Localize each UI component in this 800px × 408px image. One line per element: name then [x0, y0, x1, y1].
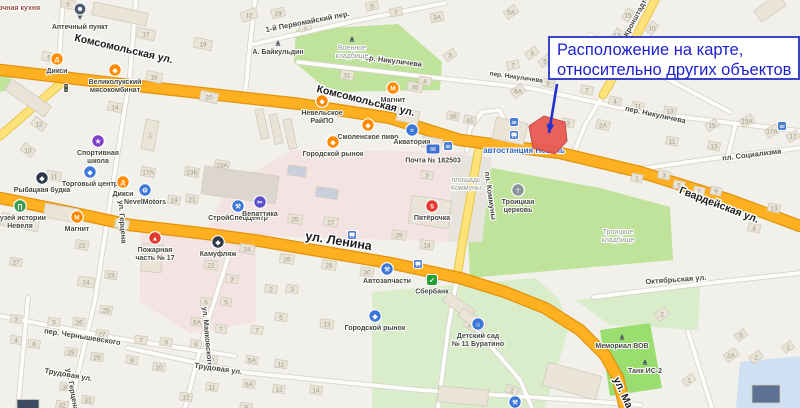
- building-number: 2: [660, 311, 664, 318]
- building-number: 4: [14, 337, 18, 344]
- poi-label: Мемориал ВОВ: [595, 343, 648, 350]
- poi-kamuflyazh[interactable]: ◆: [212, 236, 225, 249]
- poi-glyph: ≈: [410, 127, 414, 134]
- area-troitskoe-kladbishche-area: [466, 168, 673, 278]
- building: [17, 400, 39, 408]
- traffic-light-dot: [65, 89, 67, 91]
- building-number: 3: [14, 316, 18, 323]
- road-label: ул. Герцена: [117, 200, 129, 244]
- poi-glyph: М: [390, 85, 395, 92]
- building-number: 31: [84, 397, 92, 404]
- poi-label: Магнит: [381, 97, 406, 104]
- building: [269, 113, 283, 144]
- poi-diksi-1[interactable]: Д: [51, 53, 64, 66]
- poi-label: Коммуны: [451, 185, 481, 192]
- building-number: 4: [752, 225, 756, 232]
- road-minor-sw: [18, 298, 28, 408]
- building-number: 11: [51, 173, 58, 180]
- bus-stop-icon[interactable]: [348, 231, 357, 240]
- poi-label: Дикси: [47, 68, 68, 75]
- building-number: 4: [613, 98, 617, 105]
- building-number: 5: [52, 319, 56, 326]
- poi-label: Танк ИС-2: [628, 368, 662, 375]
- building-number: 29: [395, 232, 403, 239]
- building-number: 13: [35, 121, 43, 128]
- traffic-light-dot: [65, 85, 67, 87]
- road-vert-topleft: [58, 0, 63, 78]
- poi-label: № 11 Буратино: [452, 340, 504, 348]
- building-number: 8: [194, 341, 198, 348]
- poi-glyph: ◆: [372, 313, 379, 320]
- poi-label: Молочная кухня: [0, 5, 40, 12]
- poi-label: Невеля: [7, 223, 33, 230]
- poi-muzey-istorii[interactable]: ∏: [14, 200, 27, 213]
- poi-avtozapchasti[interactable]: ⚒: [381, 263, 394, 276]
- poi-magnit-1[interactable]: М: [387, 82, 400, 95]
- building-number: 5: [224, 299, 228, 306]
- building-number: 14: [111, 104, 119, 111]
- poi-pochta[interactable]: ✉: [426, 144, 440, 154]
- poi-glyph: ⚙: [142, 186, 148, 194]
- road-label: Трудовая ул.: [194, 361, 243, 377]
- building-number: 13: [323, 321, 331, 328]
- poi-sportshkola[interactable]: ★: [92, 135, 105, 148]
- building-rect: [542, 362, 601, 399]
- poi-label: Смоленское пиво: [337, 134, 398, 141]
- building-number: 13: [770, 205, 778, 212]
- poi-magnit-2[interactable]: М: [71, 211, 84, 224]
- poi-label: площадь: [451, 177, 481, 184]
- poi-label: кладбище: [602, 236, 635, 244]
- building-number: 3: [448, 52, 452, 59]
- building: [754, 0, 787, 22]
- poi-label: Городской рынок: [303, 150, 364, 158]
- building-number: 7: [255, 327, 259, 334]
- building-number: 7: [219, 326, 223, 333]
- monument-base-icon: [276, 45, 280, 46]
- building-number: 5А: [248, 357, 257, 364]
- building-number: 6А: [514, 88, 523, 95]
- poi-label: часть № 17: [135, 254, 174, 262]
- building-number: 2: [269, 286, 273, 293]
- poi-molochnaya-kuhnya[interactable]: Молочная кухня: [0, 5, 40, 12]
- building-number: 35: [411, 84, 419, 91]
- poi-label: Спортивная: [77, 150, 119, 157]
- monument-base-icon: [620, 339, 624, 340]
- building-number: 7: [585, 87, 589, 94]
- poi-glyph: Д: [55, 56, 60, 63]
- poi-label: Аптечный пункт: [52, 23, 109, 31]
- building-number: 28: [67, 349, 75, 356]
- poi-sberbank[interactable]: ✓: [427, 275, 438, 286]
- bus-stop-icon[interactable]: 30: [444, 142, 453, 151]
- building-number: 11: [669, 138, 676, 145]
- building-rect: [255, 108, 269, 139]
- building-number: 14: [312, 387, 320, 394]
- poi-glyph: ◆: [112, 67, 119, 74]
- poi-label: Музей истории: [0, 214, 46, 222]
- bus-icon-wheel: [515, 137, 516, 138]
- building-number: 20: [205, 94, 213, 101]
- building-number: 1: [687, 377, 691, 384]
- building-number: 22: [78, 242, 86, 249]
- building-number: 6: [32, 341, 36, 348]
- poi-nevelmotors[interactable]: ⚙: [139, 184, 152, 197]
- building-rect: [754, 0, 787, 22]
- bus-icon-body: [415, 262, 420, 266]
- poi-aptechny-punkt[interactable]: [74, 3, 86, 20]
- building-number: 24: [243, 246, 251, 253]
- poi-voennoe-kladbishche[interactable]: ▴: [349, 35, 354, 42]
- building-number: 11: [209, 384, 216, 391]
- building: [283, 118, 297, 149]
- poi-vepattika[interactable]: ✂: [254, 196, 267, 209]
- poi-label: кладбище: [336, 52, 369, 60]
- poi-label: Троицкая: [502, 199, 535, 206]
- building-number: 10: [155, 364, 163, 371]
- annotation-line1: Расположение на карте,: [557, 40, 791, 60]
- building-number: 31: [343, 72, 351, 79]
- building-number: 1: [786, 344, 790, 351]
- bus-icon-wheel: [350, 237, 351, 238]
- poi-label: Камуфляж: [200, 251, 238, 258]
- poi-label: А. Байкульдин: [252, 48, 303, 56]
- building-number: 19: [274, 10, 282, 17]
- poi-myasokombinat[interactable]: ◆: [109, 64, 122, 77]
- poi-label: мясокомбинат: [90, 86, 141, 94]
- poi-gorodskoy-rynok-2[interactable]: ◆: [369, 310, 382, 323]
- poi-glyph: ◆: [330, 139, 337, 146]
- building-number: 27: [12, 259, 20, 266]
- building-number: 9: [164, 339, 168, 346]
- traffic-light-icon[interactable]: [64, 84, 68, 93]
- poi-glyph: ▲: [152, 235, 158, 242]
- building-number: 17: [142, 31, 150, 38]
- poi-label: церковь: [504, 207, 533, 214]
- poi-label: школа: [87, 158, 109, 165]
- bus-icon-wheel: [416, 266, 417, 267]
- building-number: 3: [290, 286, 294, 293]
- poi-label: NevelMotors: [124, 199, 166, 206]
- building-number: 29: [93, 354, 101, 361]
- building-number: 3: [230, 276, 234, 283]
- building-rect: [269, 113, 283, 144]
- building-number: 19: [170, 197, 178, 204]
- building-number: 9: [244, 404, 248, 408]
- annotation-line2: относительно других объектов: [557, 60, 791, 80]
- building-rect: [283, 118, 297, 149]
- building-number: 17А: [142, 169, 154, 176]
- poi-label: Пожарная: [138, 247, 173, 254]
- building-number: 9: [546, 80, 550, 87]
- building-number: 15: [708, 122, 716, 129]
- poi-label: Сбербанк: [415, 288, 449, 296]
- building-number: 2: [754, 354, 758, 361]
- building-number: 7: [511, 62, 515, 69]
- poi-label: Детский сад: [457, 332, 500, 340]
- building-number: 30: [363, 269, 371, 276]
- building-number: 5: [739, 332, 743, 339]
- poi-glyph: ✉: [430, 147, 436, 154]
- building-number: 3: [662, 172, 666, 179]
- pin-icon-dot: [78, 7, 82, 11]
- poi-rajpo[interactable]: ◆: [316, 95, 329, 108]
- building-number: 13: [710, 143, 718, 150]
- building-number: 26: [75, 319, 83, 326]
- bus-icon-body: [349, 233, 354, 237]
- building-number: 3А: [433, 14, 442, 21]
- building-number: 3: [530, 50, 534, 57]
- poi-label: Городской рынок: [345, 324, 406, 332]
- building-number: 19: [199, 41, 207, 48]
- poi-glyph: ✂: [257, 199, 263, 206]
- poi-glyph: ◆: [87, 169, 94, 176]
- road-label: пер. Никуличева: [624, 104, 687, 126]
- building-rect: [17, 400, 39, 408]
- poi-pozharnaya-chast[interactable]: ▲: [149, 232, 162, 245]
- bus-stop-icon[interactable]: 30: [510, 118, 519, 127]
- building-rect: [92, 2, 149, 26]
- building-number: 15А: [741, 118, 753, 125]
- poi-glyph: М: [74, 214, 79, 221]
- building-number: 12: [182, 394, 190, 401]
- poi-label: Магнит: [65, 226, 90, 233]
- poi-glyph: ◆: [365, 122, 372, 129]
- poi-glyph: ◆: [39, 175, 46, 182]
- poi-pyaterochka[interactable]: 5: [426, 200, 439, 213]
- transit-icon-text: 30: [445, 144, 451, 149]
- poi-smolenskoe-pivo[interactable]: ◆: [362, 119, 375, 132]
- poi-glyph: †: [516, 187, 520, 194]
- building-number: 22: [207, 262, 215, 269]
- building-number: 41: [466, 117, 474, 124]
- poi-label: РайПО: [310, 117, 334, 125]
- poi-diksi-2[interactable]: Д: [117, 176, 130, 189]
- poi-label: Вепаттика: [242, 211, 278, 218]
- building-number: 5А: [507, 9, 516, 16]
- poi-glyph: Д: [121, 179, 126, 186]
- poi-glyph: ◆: [319, 98, 326, 105]
- building-number: 7: [139, 337, 143, 344]
- building-number: 8: [130, 357, 134, 364]
- building-number: 27: [327, 219, 335, 226]
- monument-base-icon: [643, 364, 647, 365]
- poi-glyph: 5: [430, 203, 434, 210]
- annotation-callout: Расположение на карте, относительно друг…: [548, 36, 800, 80]
- poi-baykuldin-monument[interactable]: ▴: [275, 39, 280, 46]
- poi-gorodskoy-rynok-1[interactable]: ◆: [327, 136, 340, 149]
- building-number: 25: [102, 307, 110, 314]
- building-number: 2А: [727, 352, 736, 359]
- poi-torgovy-tsentr[interactable]: ◆: [84, 166, 97, 179]
- traffic-light-body: [64, 84, 68, 93]
- building-number: 3: [425, 172, 429, 179]
- building-number: 7: [394, 9, 398, 16]
- building-rect: [287, 165, 306, 177]
- building-number: 2: [510, 387, 514, 394]
- building: [287, 165, 306, 177]
- poi-tank-is2[interactable]: ▴: [642, 358, 647, 365]
- building-number: 24: [82, 279, 90, 286]
- building-number: 6: [204, 299, 208, 306]
- building-number: 5: [279, 314, 283, 321]
- bus-icon-body: [511, 133, 516, 137]
- building-rect: [752, 385, 780, 403]
- building-number: 1: [148, 132, 152, 139]
- road-label: Комсомольская ул.: [73, 32, 174, 66]
- building-number: 4: [423, 78, 427, 85]
- building-number: 11: [278, 361, 285, 368]
- building-number: 3: [566, 120, 570, 127]
- building-number: 23Б: [186, 169, 198, 176]
- building-number: 23: [107, 272, 115, 279]
- poi-label: Невельское: [301, 110, 342, 117]
- bus-stop-icon[interactable]: [510, 131, 519, 140]
- poi-glyph: ∏: [17, 203, 22, 210]
- poi-label: Торговый центр: [62, 180, 118, 188]
- building-number: 21: [188, 196, 196, 203]
- building-number: 5: [66, 1, 70, 8]
- poi-label: Почта № 182503: [405, 157, 461, 165]
- bus-icon-wheel: [419, 266, 420, 267]
- transit-icon-text: 30: [779, 124, 785, 129]
- poi-glyph: ✓: [429, 278, 435, 285]
- poi-rybatskaya-budka[interactable]: ◆: [36, 172, 49, 185]
- building-number: 17А: [766, 128, 778, 135]
- building-number: 17: [789, 133, 797, 140]
- building-number: 28: [325, 262, 333, 269]
- building-number: 6А: [193, 319, 202, 326]
- transit-icon-text: 30: [511, 120, 517, 125]
- building-number: 25: [291, 216, 299, 223]
- poi-troitskaya-tserkov[interactable]: †: [512, 184, 525, 197]
- building: [542, 362, 601, 399]
- building: [92, 2, 149, 26]
- building-number: 18: [150, 74, 158, 81]
- poi-label: Дикси: [113, 191, 134, 198]
- poi-label: Акватория: [394, 139, 431, 146]
- building: [255, 108, 269, 139]
- building-number: 2А: [599, 122, 608, 129]
- poi-akvatoriya[interactable]: ≈: [406, 124, 419, 137]
- building-number: 18: [423, 242, 431, 249]
- building-number: 39: [449, 113, 457, 120]
- building-number: 6А: [245, 381, 254, 388]
- building-number: 9: [714, 188, 718, 195]
- poi-label: Автозапчасти: [363, 278, 411, 285]
- building-number: 5: [370, 3, 374, 10]
- monument-base-icon: [350, 41, 354, 42]
- building-number: 13: [24, 147, 32, 154]
- building-number: 26: [283, 256, 291, 263]
- bus-icon-wheel: [512, 137, 513, 138]
- poi-poi-bottom[interactable]: ⚒: [509, 396, 522, 408]
- building-number: 10: [648, 25, 656, 32]
- poi-label: Рыбацкая будка: [14, 186, 70, 194]
- poi-label: Пятёрочка: [414, 215, 450, 222]
- building-number: 12: [245, 12, 253, 19]
- bus-icon-wheel: [353, 237, 354, 238]
- building-number: 1: [635, 175, 639, 182]
- poi-label: Военное: [338, 45, 366, 52]
- poi-memorial-vov[interactable]: ▴: [619, 333, 624, 340]
- poi-label: Великолукский: [89, 78, 142, 86]
- poi-detsky-sad[interactable]: ☺: [472, 318, 485, 331]
- bus-stop-icon[interactable]: [414, 260, 423, 269]
- poi-glyph: ◆: [215, 239, 222, 246]
- building-number: 12: [275, 386, 283, 393]
- building: [752, 385, 780, 403]
- road-pereulok-se: [688, 332, 712, 408]
- poi-glyph: ☺: [475, 321, 482, 328]
- poi-label: Троицкое: [603, 229, 634, 236]
- bus-stop-icon[interactable]: 30: [778, 122, 787, 131]
- building-number: 5: [543, 58, 547, 65]
- building-number: 32: [58, 402, 66, 408]
